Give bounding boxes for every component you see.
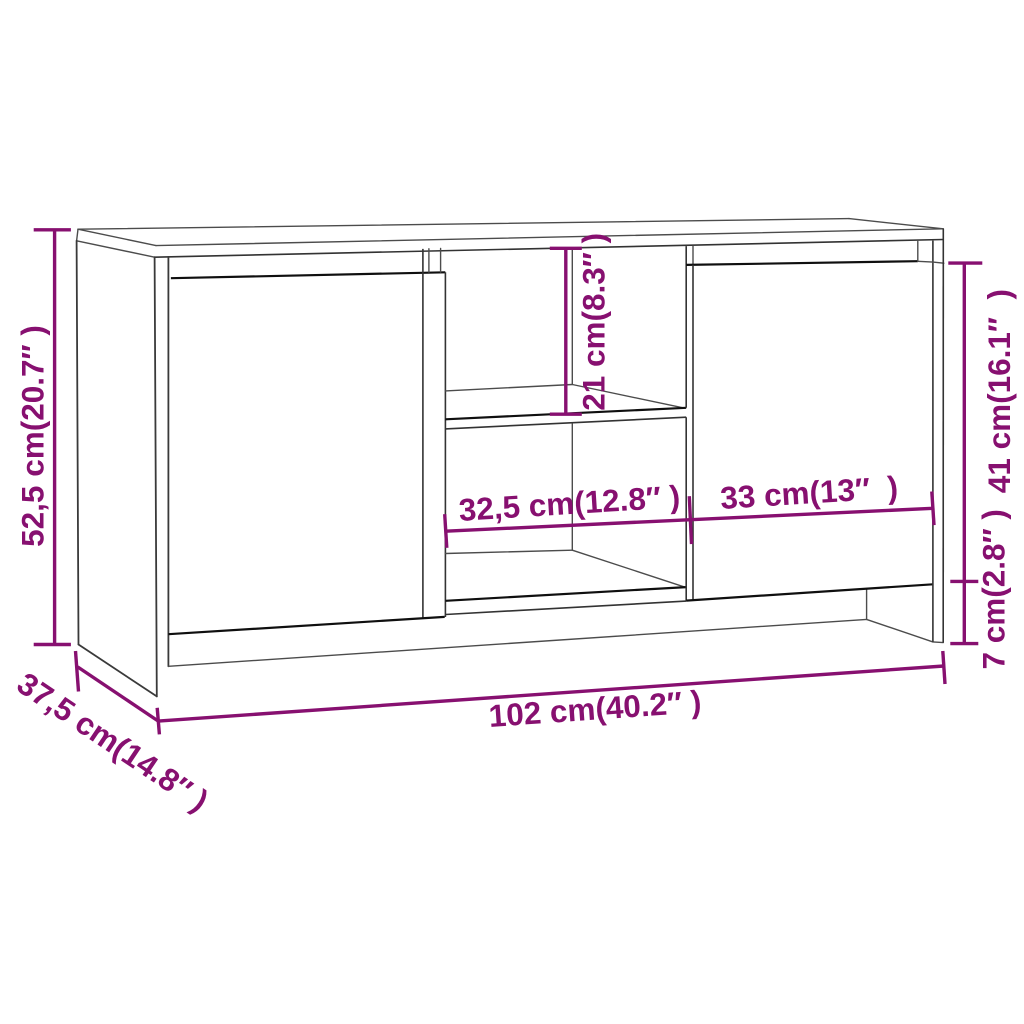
svg-text:21 cm(8.3″ ): 21 cm(8.3″ ) <box>576 233 612 411</box>
svg-text:7 cm(2.8″ ): 7 cm(2.8″ ) <box>976 509 1012 669</box>
svg-text:41 cm(16.1″ ): 41 cm(16.1″ ) <box>981 289 1017 493</box>
svg-text:52,5 cm(20.7″ ): 52,5 cm(20.7″ ) <box>15 325 51 547</box>
